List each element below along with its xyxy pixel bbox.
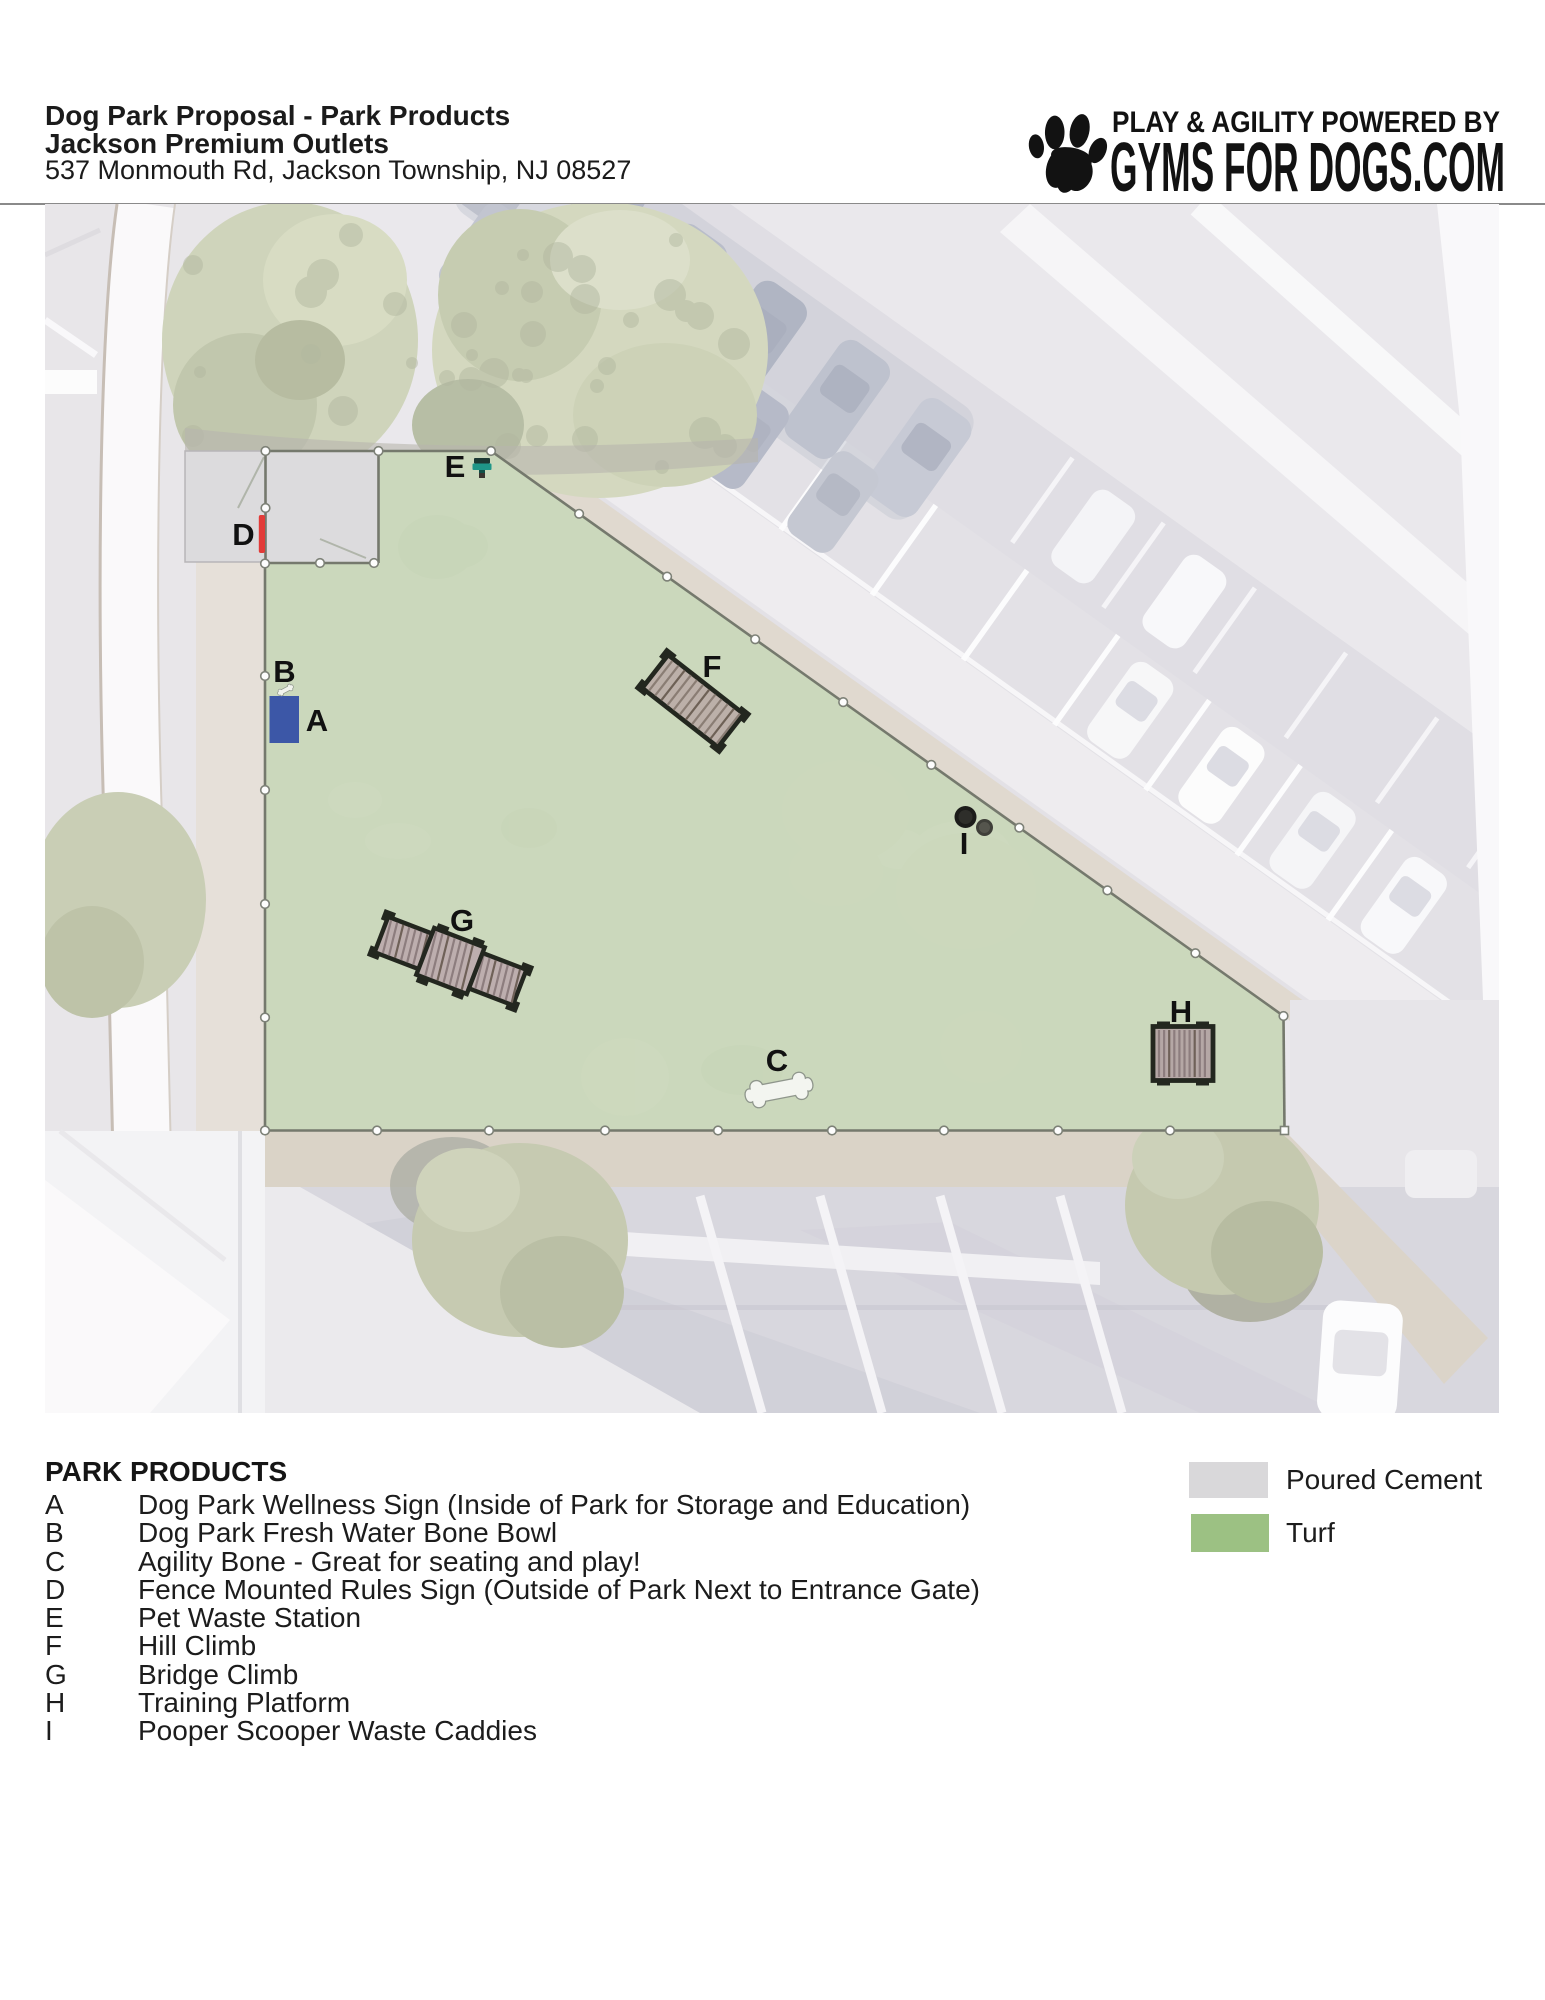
svg-text:G: G bbox=[450, 903, 474, 938]
svg-text:E: E bbox=[445, 449, 466, 484]
svg-text:B: B bbox=[273, 654, 295, 689]
svg-text:C: C bbox=[766, 1043, 788, 1078]
svg-text:H: H bbox=[1170, 994, 1192, 1029]
svg-text:A: A bbox=[306, 703, 328, 738]
svg-text:I: I bbox=[960, 826, 969, 861]
svg-text:F: F bbox=[703, 649, 722, 684]
svg-text:GYMS FOR DOGS.COM: GYMS FOR DOGS.COM bbox=[1110, 128, 1505, 200]
svg-text:D: D bbox=[232, 517, 254, 552]
